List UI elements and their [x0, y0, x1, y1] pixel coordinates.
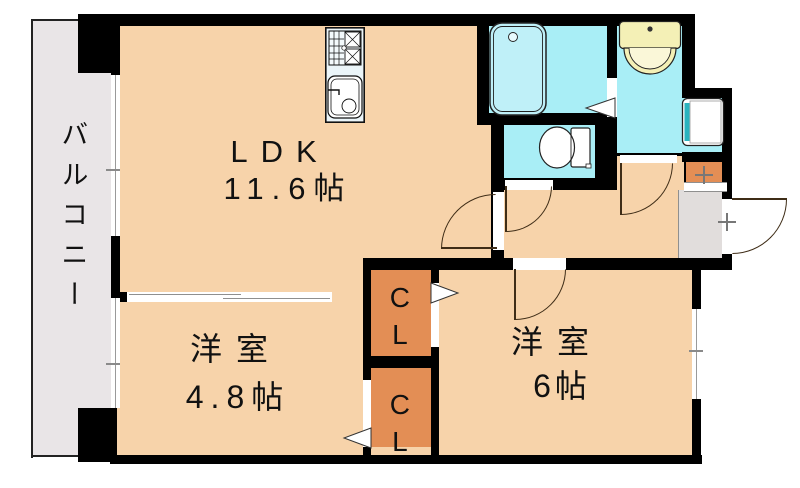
wall-bath-west — [477, 14, 489, 123]
wall-toilet-east — [595, 117, 617, 190]
ldk-window — [111, 75, 120, 236]
sliding-panel-line — [223, 298, 330, 299]
bedroom-west-label: 洋室 — [146, 333, 326, 367]
wall-closet-mid — [363, 356, 439, 368]
closet-upper-door-icon — [430, 282, 460, 304]
wall-alcove-south — [682, 152, 732, 162]
washroom-door-gap — [620, 155, 677, 163]
window-glass-line — [696, 309, 697, 399]
entrance-floor — [678, 190, 728, 260]
balcony-border-left — [31, 19, 33, 458]
entrance-step — [684, 182, 727, 192]
window-tick — [689, 350, 703, 352]
window-glass-line — [115, 75, 116, 236]
bedroom-west-window — [111, 298, 120, 408]
washbasin-icon — [618, 20, 682, 64]
bedroom-east-label: 洋室 — [467, 326, 647, 360]
ldk-size-label: 11.6帖 — [168, 173, 408, 206]
balcony-border-top — [31, 19, 80, 21]
wall-closet-west-b — [363, 447, 371, 462]
cross-mark — [703, 166, 705, 184]
bedroom-east-size-label: 6帖 — [472, 370, 652, 404]
closet-lower-door-icon — [342, 427, 372, 449]
balcony-label: バルコニー — [58, 106, 86, 334]
wall-west-a — [111, 23, 120, 75]
bedroom-east-window — [692, 309, 701, 399]
cross-mark — [726, 213, 728, 231]
bath-folding-door-icon — [584, 97, 616, 119]
window-glass-line — [115, 298, 116, 408]
window-tick — [106, 363, 120, 365]
entrance-door-arc — [732, 199, 787, 254]
bedroom-west-size-label: 4.8帖 — [138, 381, 338, 415]
ldk-label: LDK — [175, 136, 385, 169]
kitchen-unit-icon — [325, 27, 365, 123]
wall-corner-bottomleft — [78, 408, 117, 462]
closet-lower-label: CL — [385, 389, 414, 461]
wall-corner-topleft — [78, 14, 113, 73]
toilet-icon — [538, 124, 596, 172]
wall-west-b — [111, 236, 120, 298]
washing-machine-pan-icon — [681, 97, 725, 147]
sliding-door-track — [127, 292, 332, 302]
window-tick — [106, 169, 120, 171]
sliding-panel-line — [129, 294, 241, 295]
entrance-edge-line — [678, 190, 679, 260]
wall-top — [78, 14, 695, 26]
closet-upper-label: CL — [385, 282, 414, 354]
wall-bath-east — [607, 14, 617, 78]
floor-plan: バルコニー LDK 11.6帖 洋室 4.8帖 洋室 6帖 CL CL — [0, 0, 800, 488]
bathtub-icon — [489, 22, 547, 116]
wall-east-upper — [682, 14, 695, 95]
